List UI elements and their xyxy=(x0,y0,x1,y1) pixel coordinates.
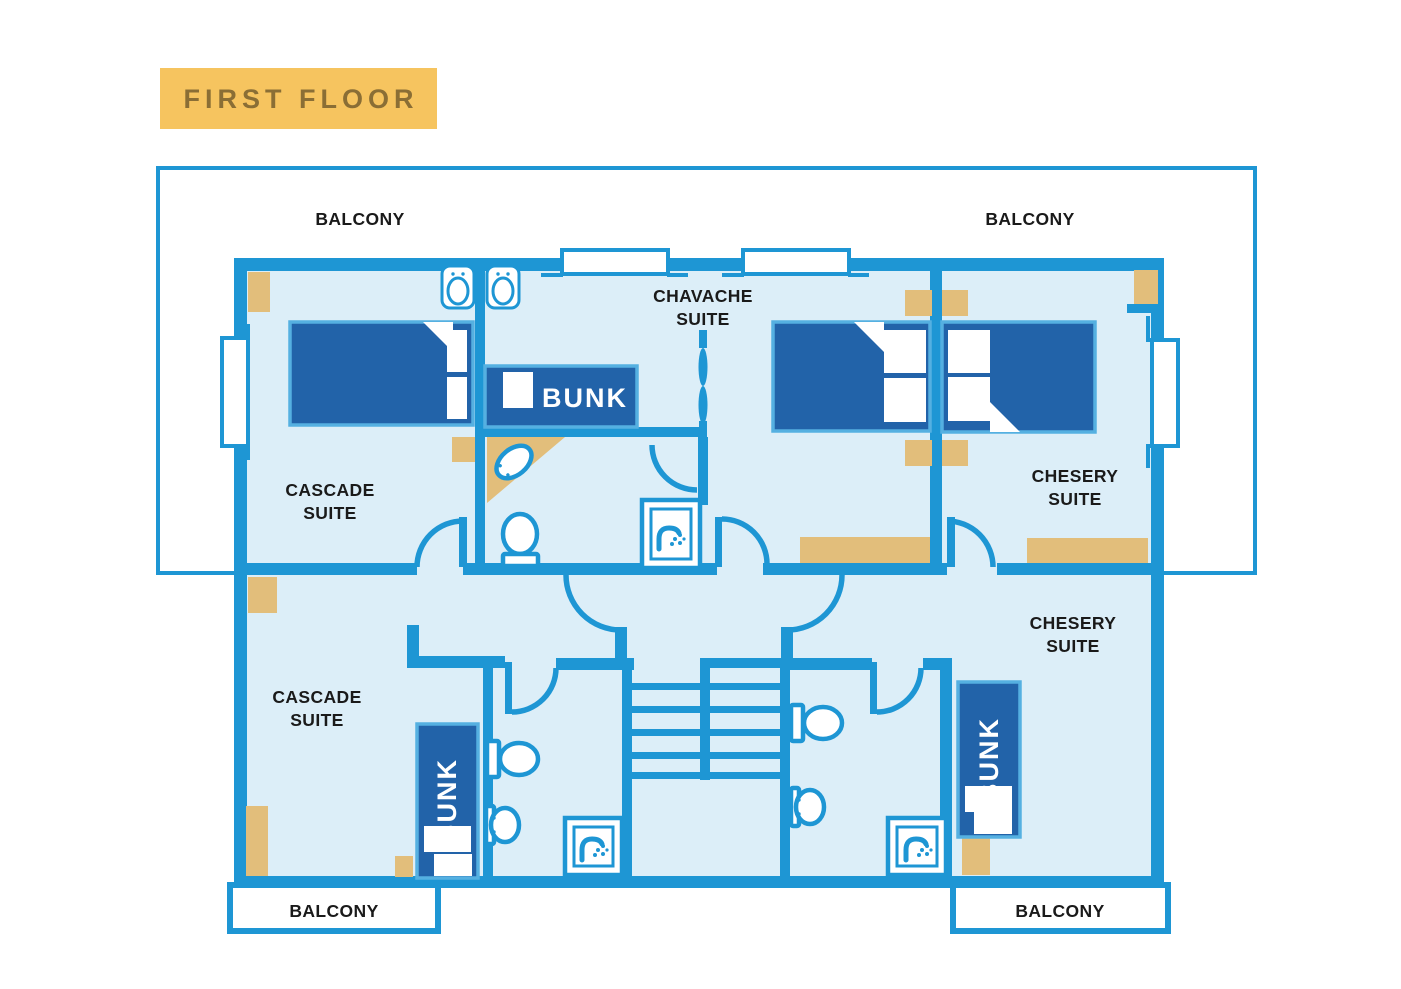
toilet-icon xyxy=(791,705,842,741)
balcony-bottom-left-label: BALCONY xyxy=(289,901,378,921)
bed-chesery xyxy=(942,322,1095,432)
sink-icon xyxy=(442,266,474,308)
sink-icon xyxy=(487,266,519,308)
first-floor-plan: FIRST FLOOR BALCONY BALCONY xyxy=(0,0,1401,989)
floor-plan-page: FIRST FLOOR BALCONY BALCONY xyxy=(0,0,1401,989)
label-chavache-suite-line2: SUITE xyxy=(676,309,730,329)
window-left xyxy=(222,324,250,460)
bunk-label: BUNK xyxy=(432,758,462,844)
label-cascade-suite-lower-line2: SUITE xyxy=(290,710,344,730)
toilet-icon xyxy=(503,514,538,566)
balcony-bottom-right-label: BALCONY xyxy=(1015,901,1104,921)
balcony-top-right-label: BALCONY xyxy=(985,209,1074,229)
bunk-bed-chesery: BUNK xyxy=(958,682,1020,837)
label-chesery-suite-lower-line1: CHESERY xyxy=(1030,613,1117,633)
cabinet xyxy=(962,838,990,875)
label-chavache-suite-line1: CHAVACHE xyxy=(653,286,753,306)
shower-upper xyxy=(642,500,700,568)
window-top-1 xyxy=(541,250,688,277)
wardrobe xyxy=(248,577,277,613)
nightstand xyxy=(942,440,968,466)
toilet-icon xyxy=(487,741,538,777)
page-title: FIRST FLOOR xyxy=(184,84,419,114)
label-cascade-suite-upper-line2: SUITE xyxy=(303,503,357,523)
balcony-top-left-label: BALCONY xyxy=(315,209,404,229)
label-chesery-suite-upper-line2: SUITE xyxy=(1048,489,1102,509)
nightstand xyxy=(942,290,968,316)
shower-lower-right xyxy=(888,818,946,875)
label-cascade-suite-lower-line1: CASCADE xyxy=(272,687,361,707)
wardrobe xyxy=(1134,270,1158,304)
window-right xyxy=(1146,316,1178,468)
wardrobe xyxy=(246,806,268,876)
window-top-2 xyxy=(722,250,869,277)
cabinet xyxy=(395,856,413,877)
bunk-bed-cascade: BUNK xyxy=(417,724,478,878)
bench xyxy=(1027,538,1148,563)
floor-title-badge: FIRST FLOOR xyxy=(160,68,437,129)
label-chesery-suite-upper-line1: CHESERY xyxy=(1032,466,1119,486)
nightstand xyxy=(905,290,932,316)
sink-icon xyxy=(486,806,519,844)
wardrobe xyxy=(248,272,270,312)
bunk-label: BUNK xyxy=(974,717,1004,803)
cabinet xyxy=(452,437,475,462)
bench xyxy=(800,537,930,563)
label-cascade-suite-upper-line1: CASCADE xyxy=(285,480,374,500)
bed-cascade-upper xyxy=(290,322,473,425)
bed-chavache xyxy=(773,322,930,431)
shower-lower-left xyxy=(565,818,622,875)
bunk-bed-chavache: BUNK xyxy=(485,366,637,427)
label-chesery-suite-lower-line2: SUITE xyxy=(1046,636,1100,656)
bunk-label: BUNK xyxy=(542,383,628,413)
nightstand xyxy=(905,440,932,466)
sink-icon xyxy=(791,788,824,826)
